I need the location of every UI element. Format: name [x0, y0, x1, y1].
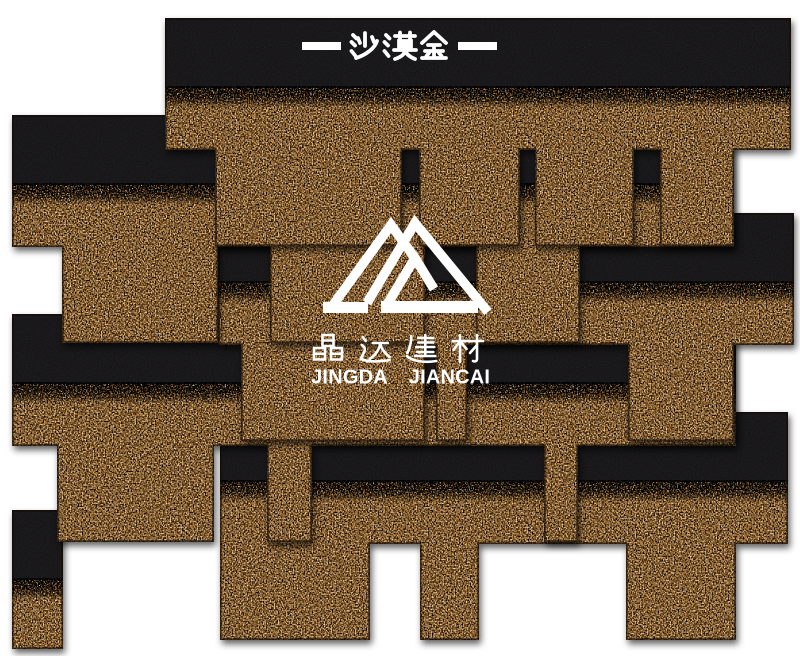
- svg-text:JINGDA: JINGDA: [311, 367, 388, 389]
- svg-text:JIANCAI: JIANCAI: [409, 367, 490, 389]
